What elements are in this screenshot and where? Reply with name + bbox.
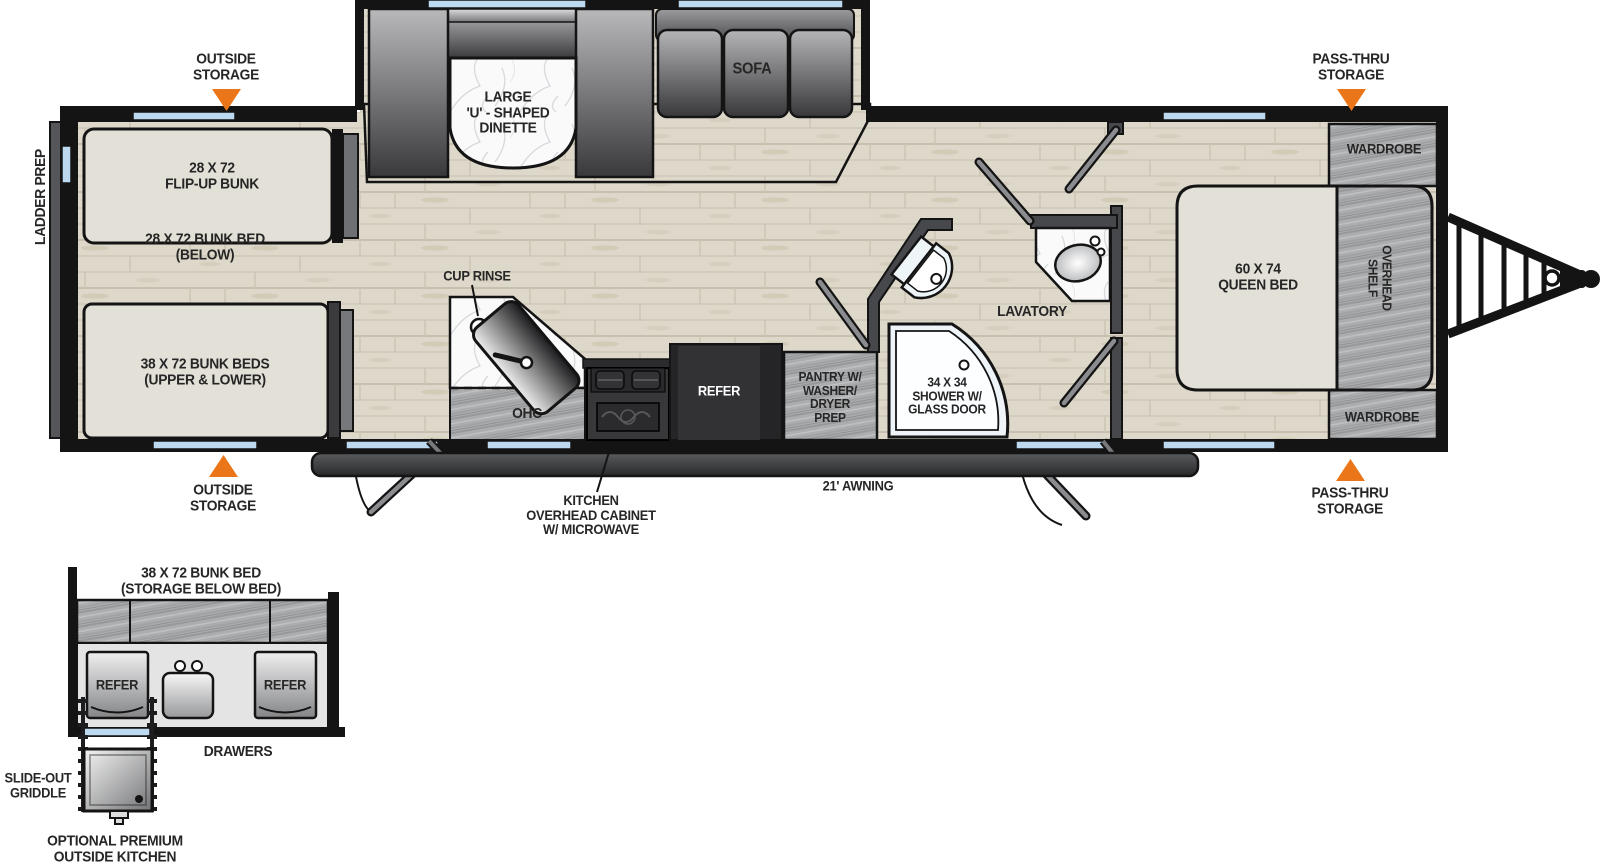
outside-kitchen-inset xyxy=(68,567,345,824)
awning-bar xyxy=(312,453,1198,476)
sofa xyxy=(656,9,854,117)
pantry xyxy=(784,352,877,440)
window xyxy=(133,112,235,120)
outside-storage-marker-bottom xyxy=(209,455,238,477)
overhead-shelf xyxy=(1337,186,1432,390)
window xyxy=(428,0,586,8)
pass-thru-marker-bottom xyxy=(1336,459,1365,481)
bunk-beds-upper-lower xyxy=(84,304,328,438)
flip-up-bunk xyxy=(84,129,332,243)
entry-door-window xyxy=(1016,441,1106,449)
floorplan-drawing xyxy=(0,0,1600,864)
rv-floorplan: OUTSIDE STORAGE PASS-THRU STORAGE LADDER… xyxy=(0,0,1600,864)
queen-bed xyxy=(1177,186,1337,390)
hitch xyxy=(1448,217,1600,334)
entry-door-window xyxy=(346,441,438,449)
u-dinette xyxy=(369,9,653,177)
window xyxy=(487,441,571,449)
outside-sink xyxy=(163,673,213,718)
dinette-table xyxy=(450,58,576,168)
window xyxy=(1163,441,1275,449)
window xyxy=(153,441,257,449)
stove xyxy=(583,359,673,440)
outside-bunk-bed xyxy=(77,600,328,643)
window xyxy=(1163,112,1266,120)
wardrobe-bottom xyxy=(1329,390,1437,439)
wardrobe-top xyxy=(1329,124,1437,186)
window xyxy=(678,0,843,8)
window xyxy=(62,146,71,183)
